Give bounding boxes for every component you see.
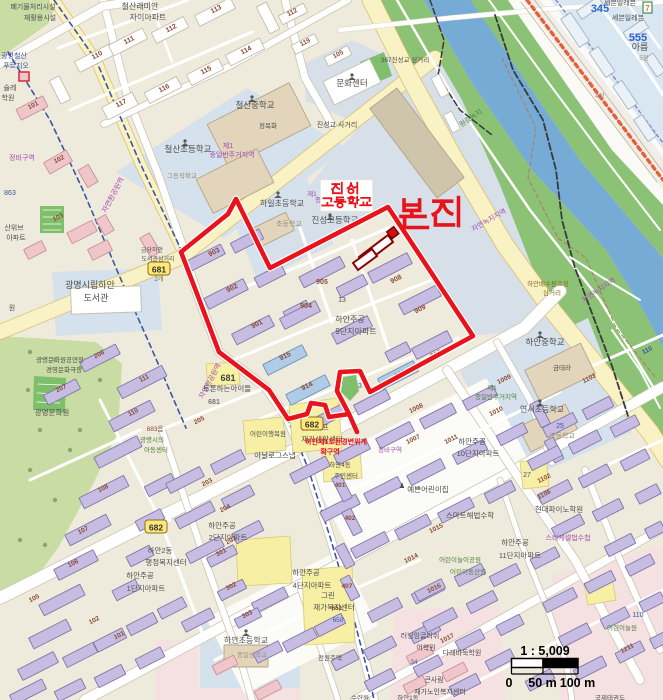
svg-text:진성교 사거리: 진성교 사거리 — [317, 120, 358, 129]
svg-text:삼거리: 삼거리 — [543, 288, 561, 297]
svg-text:555: 555 — [629, 32, 647, 44]
svg-text:♟: ♟ — [399, 482, 405, 490]
svg-text:제1: 제1 — [223, 142, 233, 150]
svg-text:세븐일레븐: 세븐일레븐 — [612, 13, 645, 22]
svg-text:682: 682 — [305, 420, 319, 430]
svg-text:푸르지오: 푸르지오 — [3, 61, 29, 70]
svg-text:5장: 5장 — [639, 53, 649, 62]
svg-text:산위브: 산위브 — [4, 223, 24, 232]
svg-text:철산래미안: 철산래미안 — [122, 1, 159, 11]
svg-text:27: 27 — [523, 472, 531, 479]
svg-text:아동센터: 아동센터 — [144, 445, 168, 454]
svg-text:광명시의: 광명시의 — [140, 435, 164, 444]
svg-text:재활용시설: 재활용시설 — [24, 13, 56, 22]
svg-text:402: 402 — [345, 515, 356, 522]
svg-text:학원: 학원 — [2, 93, 15, 102]
svg-text:정비구역: 정비구역 — [378, 445, 402, 454]
svg-text:어학원: 어학원 — [416, 643, 435, 652]
svg-text:자이아파트: 자이아파트 — [130, 12, 167, 22]
svg-text:종일반주거지역: 종일반주거지역 — [209, 150, 254, 159]
svg-text:어린이놀원: 어린이놀원 — [607, 623, 637, 632]
svg-text:초등학교: 초등학교 — [549, 431, 575, 440]
svg-text:하안중학교: 하안중학교 — [525, 337, 564, 347]
svg-text:종일반주거지역: 종일반주거지역 — [475, 392, 517, 401]
svg-text:681: 681 — [152, 265, 166, 275]
svg-text:경영문화극장: 경영문화극장 — [46, 365, 82, 374]
svg-text:683음: 683음 — [147, 425, 164, 433]
svg-text:그린: 그린 — [321, 590, 335, 600]
svg-text:수련원: 수련원 — [351, 693, 369, 700]
svg-text:650: 650 — [333, 617, 344, 624]
svg-text:행정복지센터: 행정복지센터 — [145, 557, 186, 567]
svg-text:345: 345 — [591, 3, 609, 15]
svg-text:광명문화원공연장: 광명문화원공연장 — [36, 355, 84, 364]
svg-text:금당하안: 금당하안 — [141, 246, 164, 254]
svg-text:정비구역: 정비구역 — [9, 153, 35, 162]
svg-text:하안2동: 하안2동 — [148, 545, 173, 555]
svg-text:하안1동: 하안1동 — [397, 693, 419, 700]
svg-text:13: 13 — [338, 297, 346, 304]
svg-text:어린이놀이공원: 어린이놀이공원 — [439, 555, 481, 564]
svg-text:하안주공: 하안주공 — [208, 520, 236, 530]
svg-text:재가복지센터: 재가복지센터 — [313, 602, 354, 612]
svg-text:2개: 2개 — [155, 275, 164, 283]
svg-text:도서관: 도서관 — [84, 293, 109, 303]
svg-text:현대파이노학원: 현대파이노학원 — [535, 504, 583, 514]
svg-text:4장: 4장 — [595, 91, 605, 100]
svg-text:슐레: 슐레 — [4, 83, 17, 92]
svg-text:681: 681 — [220, 373, 235, 383]
svg-text:50 m: 50 m — [528, 676, 557, 690]
svg-text:광명시립하안: 광명시립하안 — [65, 279, 115, 290]
svg-text:34: 34 — [410, 659, 418, 666]
svg-text:확구역: 확구역 — [320, 447, 339, 456]
svg-text:하안주공: 하안주공 — [292, 567, 320, 577]
svg-text:4단지아파트: 4단지아파트 — [293, 580, 332, 590]
svg-text:국제태권도: 국제태권도 — [595, 694, 625, 700]
svg-text:아파트: 아파트 — [6, 233, 26, 242]
svg-text:401: 401 — [335, 482, 346, 489]
svg-text:1 : 5,009: 1 : 5,009 — [520, 644, 569, 658]
svg-text:예쁜어린이집: 예쁜어린이집 — [407, 484, 448, 494]
svg-text:초등학교: 초등학교 — [276, 219, 302, 228]
svg-text:폐기물처리시설: 폐기물처리시설 — [10, 2, 55, 11]
svg-text:1단지아파트: 1단지아파트 — [127, 583, 166, 593]
svg-text:그동작확교: 그동작확교 — [167, 171, 197, 180]
svg-text:367진성교 삼거리: 367진성교 삼거리 — [381, 55, 430, 64]
svg-text:11단지아파트: 11단지아파트 — [499, 550, 541, 560]
svg-text:682: 682 — [149, 523, 163, 533]
svg-text:하안배수펌프장: 하안배수펌프장 — [527, 279, 569, 288]
svg-text:전원주택: 전원주택 — [318, 653, 342, 662]
svg-text:큰사람: 큰사람 — [424, 675, 444, 684]
svg-text:러닝잉글리쉬: 러닝잉글리쉬 — [401, 631, 440, 640]
svg-text:광명철산: 광명철산 — [1, 51, 27, 60]
svg-text:100 m: 100 m — [560, 676, 595, 690]
svg-text:재가노인복지센터: 재가노인복지센터 — [414, 687, 466, 696]
svg-text:제1: 제1 — [487, 384, 497, 392]
svg-text:하안주공: 하안주공 — [335, 314, 364, 324]
svg-text:110: 110 — [632, 612, 643, 619]
svg-text:하안제1호환경변위계: 하안제1호환경변위계 — [305, 437, 367, 446]
svg-text:904: 904 — [300, 303, 312, 310]
svg-text:스리케셀법수첩: 스리케셀법수첩 — [545, 533, 590, 542]
svg-text:금테라: 금테라 — [553, 363, 571, 372]
svg-text:토론하는아이들: 토론하는아이들 — [203, 383, 251, 393]
svg-text:0: 0 — [506, 676, 513, 690]
svg-text:407: 407 — [342, 583, 353, 590]
svg-text:하안4동: 하안4동 — [329, 460, 351, 469]
svg-text:스마트해법수학: 스마트해법수학 — [446, 510, 494, 520]
svg-text:7: 7 — [645, 4, 650, 13]
svg-text:905: 905 — [316, 279, 328, 286]
svg-text:9단지아파트: 9단지아파트 — [335, 326, 376, 336]
svg-text:하일초등학교: 하일초등학교 — [260, 198, 304, 208]
svg-text:아날로그스냅: 아날로그스냅 — [254, 450, 295, 460]
svg-text:광명문화원: 광명문화원 — [35, 407, 70, 417]
svg-text:원: 원 — [9, 303, 15, 312]
svg-text:다래바둑학원: 다래바둑학원 — [443, 648, 482, 657]
svg-text:어린이행복원: 어린이행복원 — [250, 429, 286, 438]
svg-text:정목화: 정목화 — [259, 121, 277, 130]
svg-text:하안주공: 하안주공 — [501, 537, 529, 547]
svg-text:하안주공: 하안주공 — [126, 570, 154, 580]
svg-text:주민센터: 주민센터 — [334, 471, 358, 480]
svg-text:하안주공: 하안주공 — [458, 436, 486, 446]
svg-text:종일성학교: 종일성학교 — [237, 650, 267, 659]
svg-text:10단지아파트: 10단지아파트 — [457, 448, 500, 458]
svg-text:2단지아파트: 2단지아파트 — [209, 532, 248, 542]
svg-text:681: 681 — [208, 399, 220, 406]
svg-text:하안초등학교: 하안초등학교 — [224, 635, 268, 645]
svg-text:25: 25 — [556, 423, 564, 430]
svg-text:어린이동산원: 어린이동산원 — [450, 567, 486, 576]
svg-text:863: 863 — [4, 190, 16, 197]
